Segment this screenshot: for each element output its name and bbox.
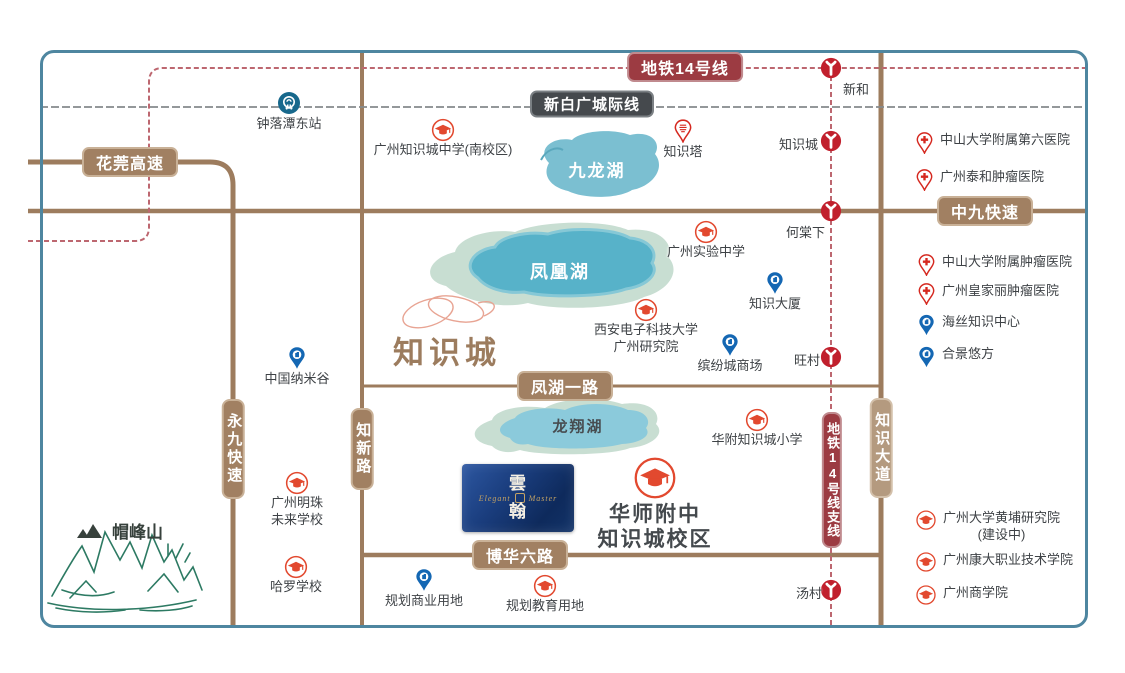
metro-line14-badge: 地铁14号线 bbox=[627, 52, 743, 82]
hospital-pin-icon bbox=[916, 169, 933, 191]
side-item-hospital: 广州皇家丽肿瘤医院 bbox=[918, 283, 1059, 305]
mountain-illustration bbox=[48, 532, 202, 612]
side-item-school: 广州大学黄埔研究院 (建设中) bbox=[916, 510, 1060, 544]
school-icon bbox=[285, 556, 308, 579]
side-item-hospital: 中山大学附属肿瘤医院 bbox=[918, 254, 1072, 276]
project-logo-card: 雲 Elegant Master 翰 bbox=[462, 464, 574, 532]
metro-station-icon bbox=[820, 57, 842, 79]
landmark-pin-icon bbox=[415, 568, 433, 592]
metro-station-icon bbox=[820, 200, 842, 222]
side-item-school: 广州商学院 bbox=[916, 585, 1008, 605]
poi-label-line1: 广州明珠 bbox=[271, 495, 323, 512]
poi-label: 钟落潭东站 bbox=[256, 116, 321, 133]
side-item-landmark: 海丝知识中心 bbox=[918, 314, 1020, 336]
project-name-bottom: 翰 bbox=[509, 503, 527, 521]
poi-label: 规划商业用地 bbox=[385, 593, 463, 610]
school-icon bbox=[634, 457, 676, 499]
school-icon bbox=[916, 585, 936, 605]
poi-label-line1: 华师附中 bbox=[598, 502, 713, 527]
intercity-line-badge: 新白广城际线 bbox=[530, 91, 654, 118]
side-item-hospital: 广州泰和肿瘤医院 bbox=[916, 169, 1044, 191]
side-item-label: 合景悠方 bbox=[942, 346, 994, 363]
metro-station-icon bbox=[820, 346, 842, 368]
poi-label: 华附知识城小学 bbox=[711, 432, 802, 449]
side-item-label: 广州皇家丽肿瘤医院 bbox=[942, 283, 1059, 300]
station-tangcun-label: 汤村 bbox=[796, 583, 822, 602]
region-label: 知识城 bbox=[393, 328, 501, 373]
metro-station-icon bbox=[820, 579, 842, 601]
maofeng-mountain: 帽峰山 bbox=[76, 518, 163, 543]
poi-label-line2: 广州研究院 bbox=[594, 339, 698, 356]
poi-label-line2: 知识城校区 bbox=[598, 527, 713, 552]
longxiang-lake-label: 龙翔湖 bbox=[552, 416, 603, 437]
yongjiu-expressway-badge: 永九快速 bbox=[222, 399, 245, 499]
poi-label: 哈罗学校 bbox=[270, 579, 322, 596]
jiulong-lake-label: 九龙湖 bbox=[569, 157, 626, 182]
side-item-label: 海丝知识中心 bbox=[942, 314, 1020, 331]
poi-label: 广州实验中学 bbox=[667, 244, 745, 261]
side-item-label: 中山大学附属肿瘤医院 bbox=[942, 254, 1072, 271]
mountain-icon bbox=[76, 523, 106, 539]
huawan-yongjiu-road bbox=[28, 162, 233, 625]
poi-label-line2: 未来学校 bbox=[271, 512, 323, 529]
station-wangcun-label: 旺村 bbox=[794, 350, 820, 369]
station-hetangxia-label: 何棠下 bbox=[786, 222, 825, 241]
landmark-pin-icon bbox=[288, 346, 306, 370]
side-item-hospital: 中山大学附属第六医院 bbox=[916, 132, 1070, 154]
school-icon bbox=[916, 552, 936, 572]
mountain-label: 帽峰山 bbox=[112, 518, 163, 543]
hospital-pin-icon bbox=[918, 283, 935, 305]
side-item-label: 广州泰和肿瘤医院 bbox=[940, 169, 1044, 186]
poi-label: 缤纷城商场 bbox=[697, 358, 762, 375]
side-item-school: 广州康大职业技术学院 bbox=[916, 552, 1073, 572]
landmark-pin-icon bbox=[721, 333, 739, 357]
landmark-pin-icon bbox=[918, 314, 935, 336]
school-icon bbox=[695, 221, 718, 244]
hospital-pin-icon bbox=[916, 132, 933, 154]
side-item-label: 广州大学黄埔研究院 bbox=[943, 510, 1060, 527]
fenghu-road-badge: 凤湖一路 bbox=[517, 371, 613, 401]
school-icon bbox=[916, 510, 936, 530]
zhishi-avenue-badge: 知识大道 bbox=[870, 398, 893, 498]
side-item-label2: (建设中) bbox=[943, 527, 1060, 544]
poi-label: 规划教育用地 bbox=[506, 598, 584, 615]
rail-station-icon bbox=[277, 91, 301, 115]
metro-line14-branch-badge: 地铁14号线支线 bbox=[822, 412, 842, 548]
project-en-right: Master bbox=[529, 494, 558, 503]
project-name-top: 雲 bbox=[509, 475, 527, 493]
tower-pin-icon bbox=[674, 119, 692, 143]
station-zhishicheng-label: 知识城 bbox=[779, 134, 818, 153]
landmark-pin-icon bbox=[918, 346, 935, 368]
school-icon bbox=[746, 409, 769, 432]
poi-label: 中国纳米谷 bbox=[264, 371, 329, 388]
school-icon bbox=[286, 472, 309, 495]
fenghuang-lake-label: 凤凰湖 bbox=[530, 258, 590, 284]
hospital-pin-icon bbox=[918, 254, 935, 276]
huawan-expressway-badge: 花莞高速 bbox=[82, 147, 178, 177]
school-icon bbox=[432, 119, 455, 142]
school-icon bbox=[635, 299, 658, 322]
side-item-label: 广州商学院 bbox=[943, 585, 1008, 602]
project-en-left: Elegant bbox=[479, 494, 511, 503]
metro-station-icon bbox=[820, 130, 842, 152]
zhongjiu-expressway-badge: 中九快速 bbox=[937, 196, 1033, 226]
station-xinhe-label: 新和 bbox=[843, 79, 869, 98]
bohua-road-badge: 博华六路 bbox=[472, 540, 568, 570]
zhixin-road-badge: 知新路 bbox=[351, 408, 374, 490]
side-item-label: 中山大学附属第六医院 bbox=[940, 132, 1070, 149]
school-icon bbox=[534, 575, 557, 598]
poi-label: 知识塔 bbox=[663, 144, 702, 161]
side-item-landmark: 合景悠方 bbox=[918, 346, 994, 368]
poi-label: 知识大厦 bbox=[749, 296, 801, 313]
side-item-label: 广州康大职业技术学院 bbox=[943, 552, 1073, 569]
poi-label-line1: 西安电子科技大学 bbox=[594, 322, 698, 339]
landmark-pin-icon bbox=[766, 271, 784, 295]
location-map: 地铁14号线 新白广城际线 花莞高速 中九快速 凤湖一路 博华六路 永九快速 知… bbox=[0, 0, 1125, 673]
poi-label: 广州知识城中学(南校区) bbox=[374, 142, 513, 159]
